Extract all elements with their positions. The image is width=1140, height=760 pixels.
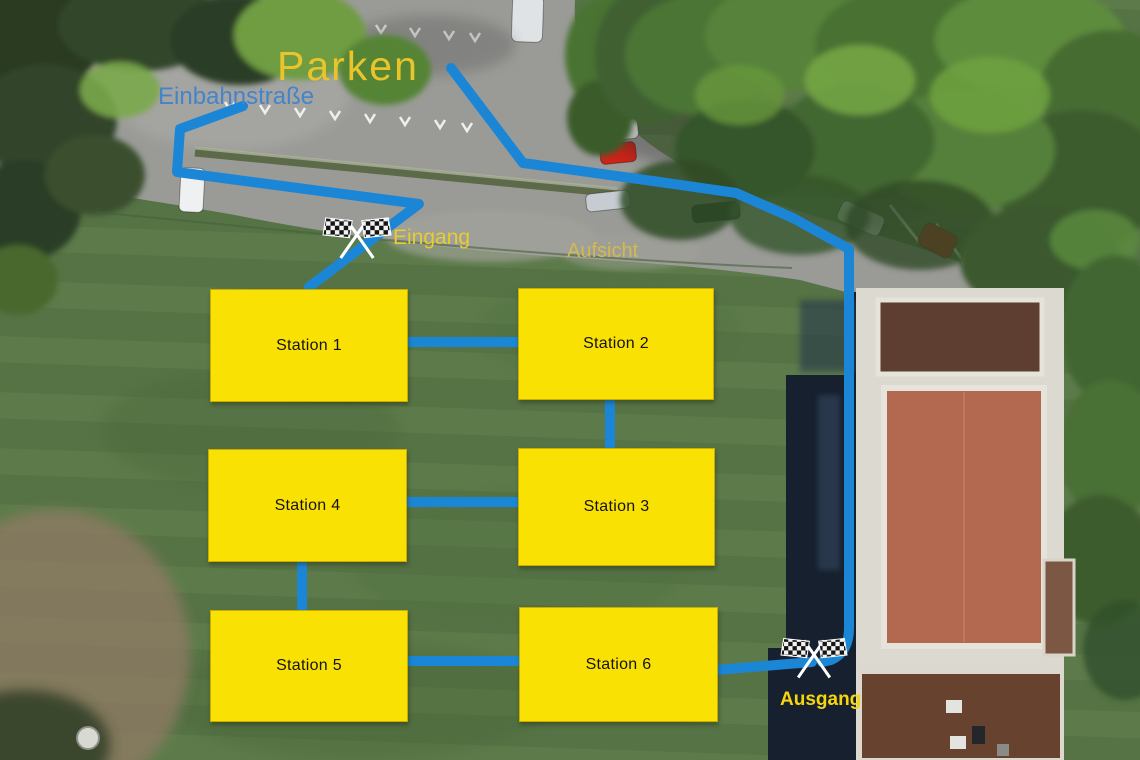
station-1-label: Station 1 [276,337,342,355]
parking-label: Parken [277,46,419,87]
station-1-box: Station 1 [210,289,408,402]
supervision-label: Aufsicht [567,241,638,261]
station-5-box: Station 5 [210,610,408,722]
site-map: Station 1 Station 2 Station 3 Station 4 … [0,0,1140,760]
station-3-label: Station 3 [584,498,650,516]
station-3-box: Station 3 [518,448,715,566]
station-2-box: Station 2 [518,288,714,400]
station-6-box: Station 6 [519,607,718,722]
car-van [511,0,544,43]
one-way-street-label: Einbahnstraße [158,85,314,109]
building-roof-dark [878,300,1042,374]
building-annex [1044,560,1074,655]
building [856,288,1074,760]
exit-label: Ausgang [780,690,861,709]
station-2-label: Station 2 [583,335,649,353]
station-4-label: Station 4 [275,497,341,515]
station-6-label: Station 6 [586,656,652,674]
entrance-label: Eingang [393,227,470,248]
station-5-label: Station 5 [276,657,342,675]
station-4-box: Station 4 [208,449,407,562]
